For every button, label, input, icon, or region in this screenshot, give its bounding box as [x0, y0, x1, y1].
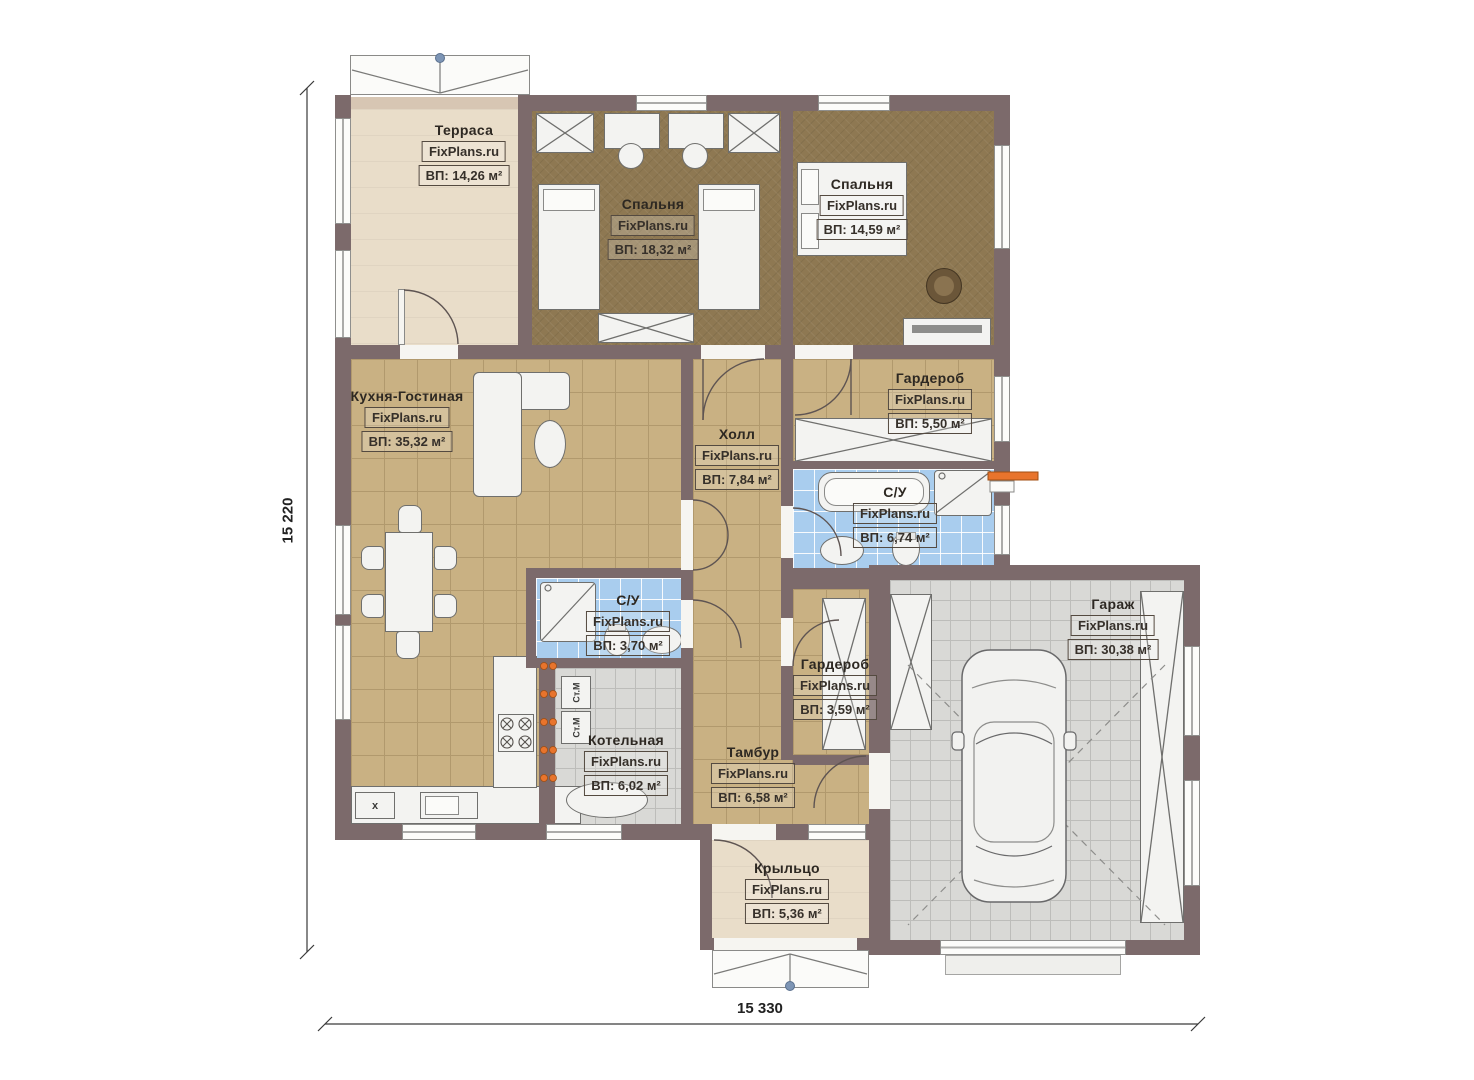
chair [434, 546, 457, 570]
terrace-wall [337, 97, 518, 109]
watermark: FixPlans.ru [1071, 615, 1155, 636]
garage-door [940, 940, 1126, 955]
watermark: FixPlans.ru [711, 763, 795, 784]
room-label-bedroom1: Спальня FixPlans.ru ВП: 18,32 м² [608, 196, 699, 260]
room-label-porch: Крыльцо FixPlans.ru ВП: 5,36 м² [745, 860, 829, 924]
wall [1184, 565, 1200, 955]
room-label-garage: Гараж FixPlans.ru ВП: 30,38 м² [1068, 596, 1159, 660]
garage-driveway [945, 955, 1121, 975]
terrace-steps [350, 55, 530, 95]
wall [526, 568, 691, 578]
door-leaf [398, 289, 405, 345]
kitchen-sink [420, 792, 478, 819]
x-mark-label: х [356, 793, 394, 818]
door-opening [712, 824, 776, 840]
window [402, 824, 476, 840]
door-opening [795, 345, 853, 359]
hall-floor [693, 359, 781, 660]
closet [598, 313, 694, 343]
watermark: FixPlans.ru [853, 503, 937, 524]
window [335, 525, 351, 615]
closet [728, 113, 780, 153]
room-name: Гараж [1091, 596, 1134, 612]
wall [518, 111, 532, 359]
window [335, 625, 351, 720]
wall [700, 840, 712, 950]
bed-single [698, 184, 760, 310]
wall [781, 359, 793, 760]
window [636, 95, 707, 111]
bed-single [538, 184, 600, 310]
window [546, 824, 622, 840]
room-area: ВП: 7,84 м² [695, 469, 779, 490]
chair [361, 546, 384, 570]
door-opening [781, 506, 793, 558]
chair [682, 143, 708, 169]
door-opening [714, 938, 857, 950]
floor-plan: х Ст.М Ст.М [0, 0, 1474, 1080]
room-label-bathroom-main: С/У FixPlans.ru ВП: 6,74 м² [853, 484, 937, 548]
wall [539, 668, 555, 824]
room-label-terrace: Терраса FixPlans.ru ВП: 14,26 м² [419, 122, 510, 186]
window [818, 95, 890, 111]
watermark: FixPlans.ru [611, 215, 695, 236]
room-area: ВП: 30,38 м² [1068, 639, 1159, 660]
room-name: Кухня-Гостиная [350, 388, 463, 404]
room-label-boiler: Котельная FixPlans.ru ВП: 6,02 м² [584, 732, 668, 796]
wall [518, 95, 1010, 111]
room-area: ВП: 5,50 м² [888, 413, 972, 434]
door-opening [701, 345, 765, 359]
room-name: Спальня [831, 176, 894, 192]
room-area: ВП: 6,58 м² [711, 787, 795, 808]
wall [869, 565, 1200, 580]
chair [396, 631, 420, 659]
room-name: Тамбур [727, 744, 780, 760]
door-opening [681, 600, 693, 648]
window [335, 250, 351, 338]
room-name: Крыльцо [754, 860, 820, 876]
watermark: FixPlans.ru [820, 195, 904, 216]
door-opening [400, 345, 458, 359]
wall [526, 658, 691, 668]
chair [398, 505, 422, 533]
window [335, 118, 351, 224]
room-label-hall: Холл FixPlans.ru ВП: 7,84 м² [695, 426, 779, 490]
room-label-kitchen-living: Кухня-Гостиная FixPlans.ru ВП: 35,32 м² [350, 388, 463, 452]
watermark: FixPlans.ru [365, 407, 449, 428]
window [994, 145, 1010, 249]
watermark: FixPlans.ru [695, 445, 779, 466]
sofa [473, 372, 522, 497]
room-name: С/У [616, 592, 640, 608]
dining-table [385, 532, 433, 632]
window [808, 824, 866, 840]
room-area: ВП: 6,74 м² [853, 527, 937, 548]
room-area: ВП: 18,32 м² [608, 239, 699, 260]
room-name: С/У [883, 484, 907, 500]
room-name: Гардероб [896, 370, 965, 386]
room-area: ВП: 3,70 м² [586, 635, 670, 656]
watermark: FixPlans.ru [793, 675, 877, 696]
door-opening [869, 753, 890, 809]
wall [793, 755, 878, 765]
dimension-left: 15 220 [279, 498, 296, 544]
cabinet-x-mark: х [355, 792, 395, 819]
closet [536, 113, 594, 153]
room-area: ВП: 6,02 м² [584, 775, 668, 796]
room-area: ВП: 35,32 м² [362, 431, 453, 452]
watermark: FixPlans.ru [584, 751, 668, 772]
watermark: FixPlans.ru [586, 611, 670, 632]
room-area: ВП: 5,36 м² [745, 903, 829, 924]
room-area: ВП: 14,26 м² [419, 165, 510, 186]
wall [526, 568, 536, 668]
coffee-table [534, 420, 566, 468]
room-name: Спальня [622, 196, 685, 212]
wall [793, 461, 994, 469]
room-name: Гардероб [801, 656, 870, 672]
wall [793, 578, 878, 589]
room-label-wardrobe-top: Гардероб FixPlans.ru ВП: 5,50 м² [888, 370, 972, 434]
watermark: FixPlans.ru [745, 879, 829, 900]
stove [498, 714, 534, 752]
door-opening [781, 618, 793, 666]
watermark: FixPlans.ru [888, 389, 972, 410]
door-opening [681, 500, 693, 570]
room-name: Котельная [588, 732, 664, 748]
room-area: ВП: 14,59 м² [817, 219, 908, 240]
room-label-wardrobe-bottom: Гардероб FixPlans.ru ВП: 3,59 м² [793, 656, 877, 720]
room-area: ВП: 3,59 м² [793, 699, 877, 720]
room-label-vestibule: Тамбур FixPlans.ru ВП: 6,58 м² [711, 744, 795, 808]
porch-steps [712, 950, 869, 988]
garage-shelf [890, 594, 932, 730]
dimension-bottom: 15 330 [737, 1000, 783, 1017]
washing-machine: Ст.М [561, 676, 591, 709]
plant [926, 268, 962, 304]
room-label-bedroom2: Спальня FixPlans.ru ВП: 14,59 м² [817, 176, 908, 240]
watermark: FixPlans.ru [422, 141, 506, 162]
window [1184, 780, 1200, 886]
room-label-bathroom-small: С/У FixPlans.ru ВП: 3,70 м² [586, 592, 670, 656]
window [994, 376, 1010, 442]
washer-label: Ст.М [561, 679, 592, 707]
chair [434, 594, 457, 618]
wall [781, 111, 793, 345]
window [1184, 646, 1200, 736]
room-name: Терраса [435, 122, 493, 138]
room-name: Холл [719, 426, 755, 442]
chair [361, 594, 384, 618]
window [994, 505, 1010, 555]
chair [618, 143, 644, 169]
shower [934, 470, 992, 516]
